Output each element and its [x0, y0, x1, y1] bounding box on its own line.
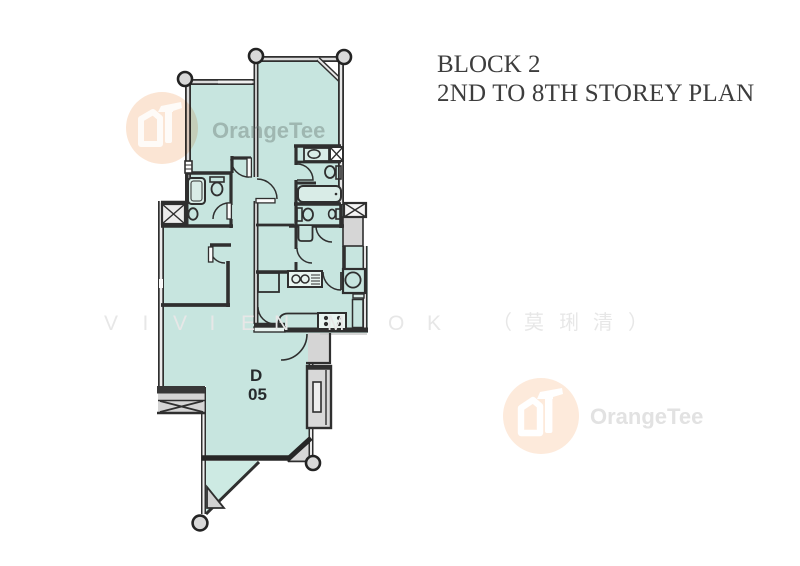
svg-text:05: 05 — [248, 385, 267, 404]
svg-text:BLOCK 2: BLOCK 2 — [437, 51, 540, 78]
svg-text:N: N — [274, 312, 289, 335]
svg-text:M: M — [327, 312, 345, 335]
svg-text:O: O — [388, 312, 404, 335]
svg-text:（: （ — [492, 311, 512, 334]
svg-text:I: I — [143, 312, 149, 335]
svg-text:K: K — [427, 312, 441, 335]
svg-text:V: V — [104, 312, 118, 335]
svg-text:）: ） — [628, 311, 648, 334]
svg-text:清: 清 — [593, 311, 613, 334]
svg-text:莫: 莫 — [524, 311, 544, 334]
svg-text:OrangeTee: OrangeTee — [590, 404, 703, 429]
svg-text:I: I — [210, 312, 216, 335]
svg-text:OrangeTee: OrangeTee — [212, 118, 325, 143]
svg-text:D: D — [250, 366, 262, 385]
svg-text:2ND TO 8TH STOREY PLAN: 2ND TO 8TH STOREY PLAN — [437, 80, 754, 107]
svg-text:琍: 琍 — [559, 311, 579, 334]
svg-text:E: E — [241, 312, 255, 335]
svg-text:V: V — [173, 312, 187, 335]
